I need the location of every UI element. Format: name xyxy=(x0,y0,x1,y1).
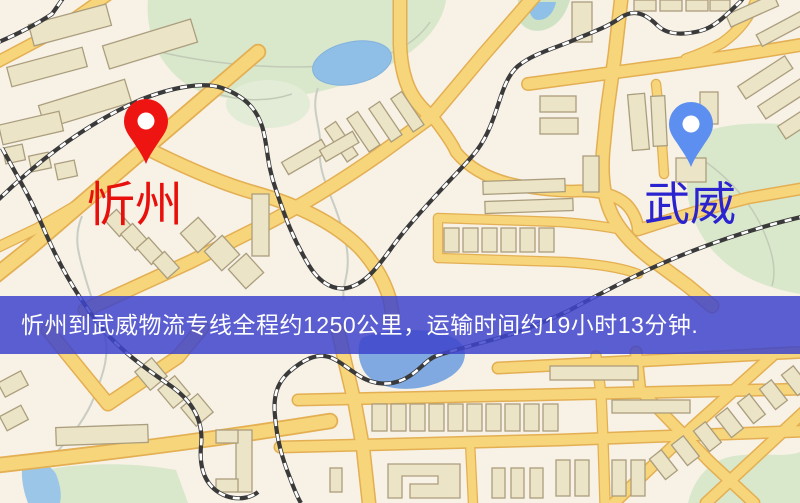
route-info-banner: 忻州到武威物流专线全程约1250公里，运输时间约19小时13分钟. xyxy=(0,296,800,354)
route-map-figure: 忻州 武威 忻州到武威物流专线全程约1250公里，运输时间约19小时13分钟. xyxy=(0,0,800,503)
route-info-text: 忻州到武威物流专线全程约1250公里，运输时间约19小时13分钟. xyxy=(21,312,698,338)
destination-label: 武威 xyxy=(644,179,736,230)
map-image: 忻州 武威 xyxy=(0,0,800,503)
origin-label: 忻州 xyxy=(87,179,183,232)
